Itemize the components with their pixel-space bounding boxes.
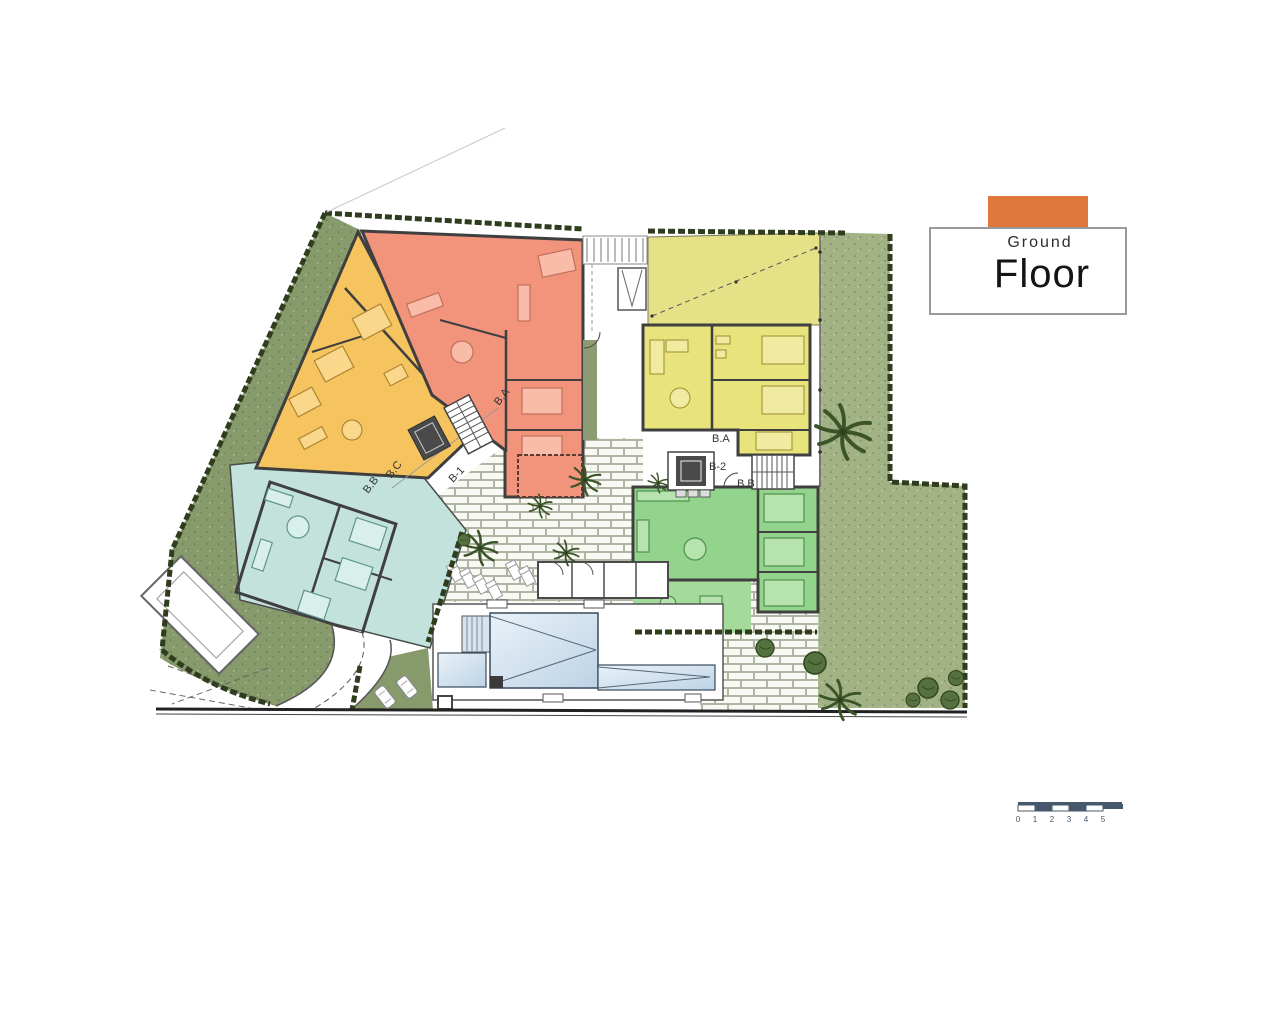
- unit-label-bb-east: B.B: [737, 478, 755, 490]
- unit-label-b2: B-2: [709, 461, 726, 473]
- pool-steps: [462, 616, 490, 652]
- kids-pool: [438, 653, 486, 687]
- unit-label-ba-east: B.A: [712, 433, 730, 445]
- bush: [918, 678, 938, 698]
- road: [156, 709, 967, 717]
- bush: [906, 693, 920, 707]
- floor-plan-canvas: B.B B.C B.A B-1 B.A B-2 B.B Ground Floor…: [0, 0, 1280, 1024]
- main-pool: [490, 613, 598, 688]
- bush: [458, 534, 470, 546]
- bush: [941, 691, 959, 709]
- floor-plan-page: B.B B.C B.A B-1 B.A B-2 B.B Ground Floor…: [0, 0, 1280, 1024]
- unit-yellow: [643, 233, 820, 455]
- entry-stair: [618, 268, 646, 310]
- pool-equipment-box: [438, 696, 452, 709]
- scale-tick: 2: [1050, 815, 1055, 824]
- scale-tick: 5: [1101, 815, 1106, 824]
- title-accent-bar: [988, 196, 1088, 228]
- pool-area: [433, 600, 723, 709]
- scale-tick: 0: [1016, 815, 1021, 824]
- planter-strip: [583, 340, 597, 440]
- bush: [804, 652, 826, 674]
- scale-tick: 3: [1067, 815, 1072, 824]
- bush: [756, 639, 774, 657]
- yellow-garden: [648, 233, 820, 325]
- title-main: Floor: [994, 252, 1090, 296]
- title-subtitle: Ground: [1007, 234, 1072, 251]
- title-block: Ground Floor: [930, 196, 1126, 314]
- scale-tick: 1: [1033, 815, 1038, 824]
- bush: [949, 671, 964, 686]
- salmon-terrace: [518, 455, 582, 497]
- pool-building: [538, 562, 668, 598]
- pool-corner-step: [490, 676, 503, 688]
- scale-tick: 4: [1084, 815, 1089, 824]
- scale-bar: 0 1 2 3 4 5: [1016, 802, 1123, 824]
- entrance-pergola: [583, 236, 647, 348]
